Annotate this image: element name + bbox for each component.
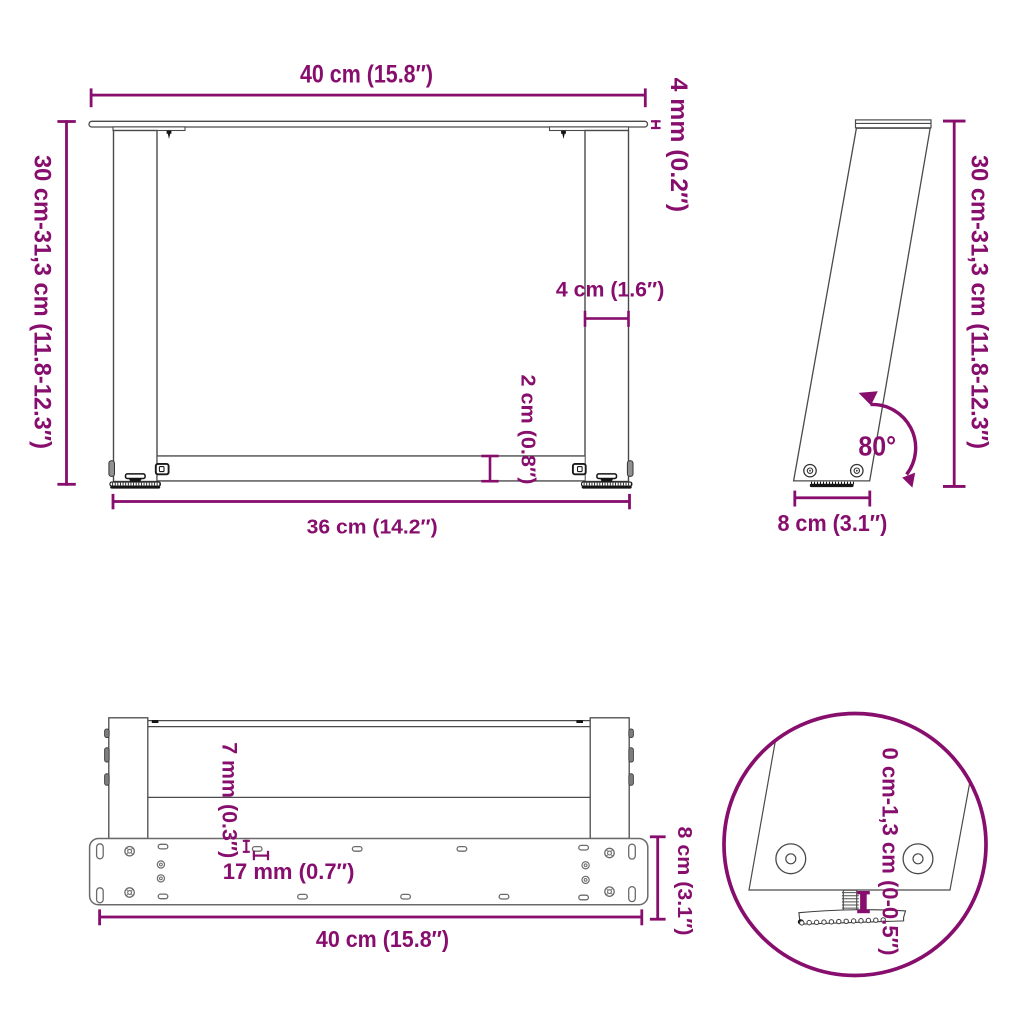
svg-text:40 cm (15.8″): 40 cm (15.8″): [300, 62, 433, 89]
svg-text:0 cm-1,3 cm (0-0.5″): 0 cm-1,3 cm (0-0.5″): [878, 748, 903, 956]
svg-text:2 cm (0.8″): 2 cm (0.8″): [517, 375, 540, 485]
svg-text:17 mm (0.7″): 17 mm (0.7″): [223, 859, 355, 884]
svg-text:4 cm (1.6″): 4 cm (1.6″): [556, 278, 664, 302]
svg-text:80°: 80°: [858, 430, 896, 461]
svg-text:8 cm (3.1″): 8 cm (3.1″): [777, 510, 887, 536]
svg-text:30 cm-31,3 cm (11.8-12.3″): 30 cm-31,3 cm (11.8-12.3″): [28, 155, 55, 449]
svg-text:36 cm (14.2″): 36 cm (14.2″): [307, 516, 438, 538]
svg-text:7 mm (0.3″): 7 mm (0.3″): [218, 742, 242, 858]
svg-text:8 cm (3.1″): 8 cm (3.1″): [673, 827, 695, 936]
svg-text:40 cm (15.8″): 40 cm (15.8″): [316, 926, 449, 952]
svg-text:4 mm (0.2″): 4 mm (0.2″): [665, 78, 692, 213]
svg-text:30 cm-31,3 cm (11.8-12.3″): 30 cm-31,3 cm (11.8-12.3″): [966, 155, 993, 449]
